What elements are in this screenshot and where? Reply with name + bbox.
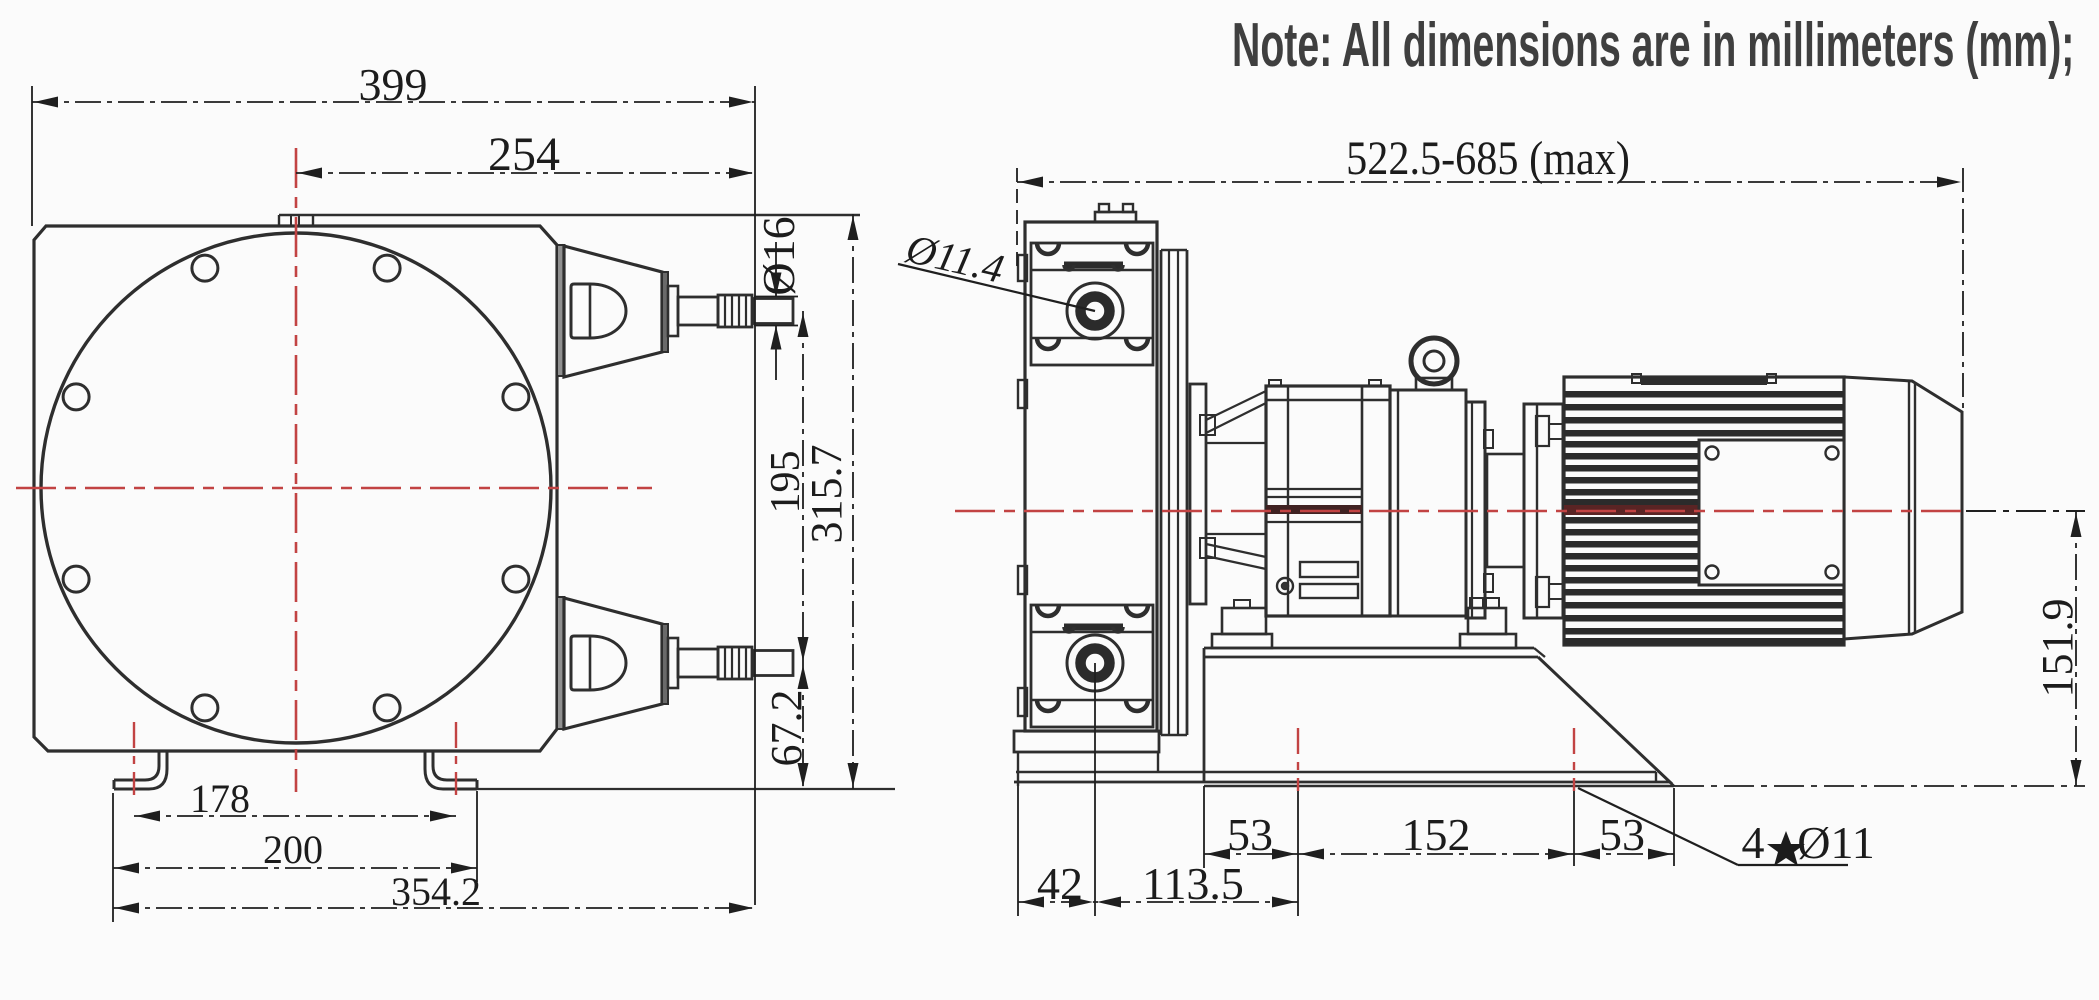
svg-text:254: 254 <box>488 128 560 181</box>
svg-text:315.7: 315.7 <box>802 445 851 544</box>
svg-text:42: 42 <box>1037 858 1083 909</box>
svg-text:113.5: 113.5 <box>1142 858 1244 909</box>
svg-text:Ø16: Ø16 <box>753 216 804 295</box>
svg-text:53: 53 <box>1227 809 1273 860</box>
svg-text:354.2: 354.2 <box>391 869 481 914</box>
svg-text:Note: All dimensions are in mi: Note: All dimensions are in millimeters … <box>1232 10 2074 79</box>
svg-text:178: 178 <box>190 776 250 821</box>
svg-text:522.5-685 (max): 522.5-685 (max) <box>1346 132 1630 185</box>
svg-text:200: 200 <box>263 827 323 872</box>
svg-text:4: 4 <box>1742 817 1765 868</box>
svg-text:Ø11: Ø11 <box>1797 817 1875 868</box>
svg-text:152: 152 <box>1402 809 1471 860</box>
svg-text:67.2: 67.2 <box>762 690 811 767</box>
svg-text:399: 399 <box>359 59 428 110</box>
svg-text:151.9: 151.9 <box>2033 599 2082 698</box>
